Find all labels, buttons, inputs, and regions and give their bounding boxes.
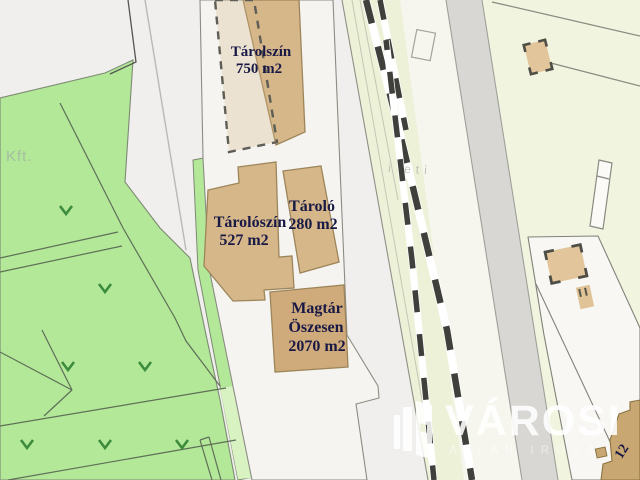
building-area-label: 2070 m2: [288, 338, 345, 355]
faint-street-label: i eti: [388, 161, 432, 177]
map-canvas: i eti 12: [0, 0, 640, 480]
company-area-label: Kft.: [6, 148, 33, 165]
building-qualifier-label: Öszesen: [288, 318, 343, 336]
building-area-label: 280 m2: [288, 216, 337, 233]
building-area-label: 750 m2: [236, 61, 282, 77]
building-label: Tárolószín: [214, 214, 287, 231]
building-area-label: 527 m2: [219, 232, 268, 249]
small-building-midright: [545, 245, 587, 284]
building-label: Tárolszín: [231, 44, 292, 60]
building-label: Tároló: [289, 198, 335, 215]
building-label: Magtár: [291, 300, 343, 317]
map-screenshot: i eti 12: [0, 0, 640, 480]
